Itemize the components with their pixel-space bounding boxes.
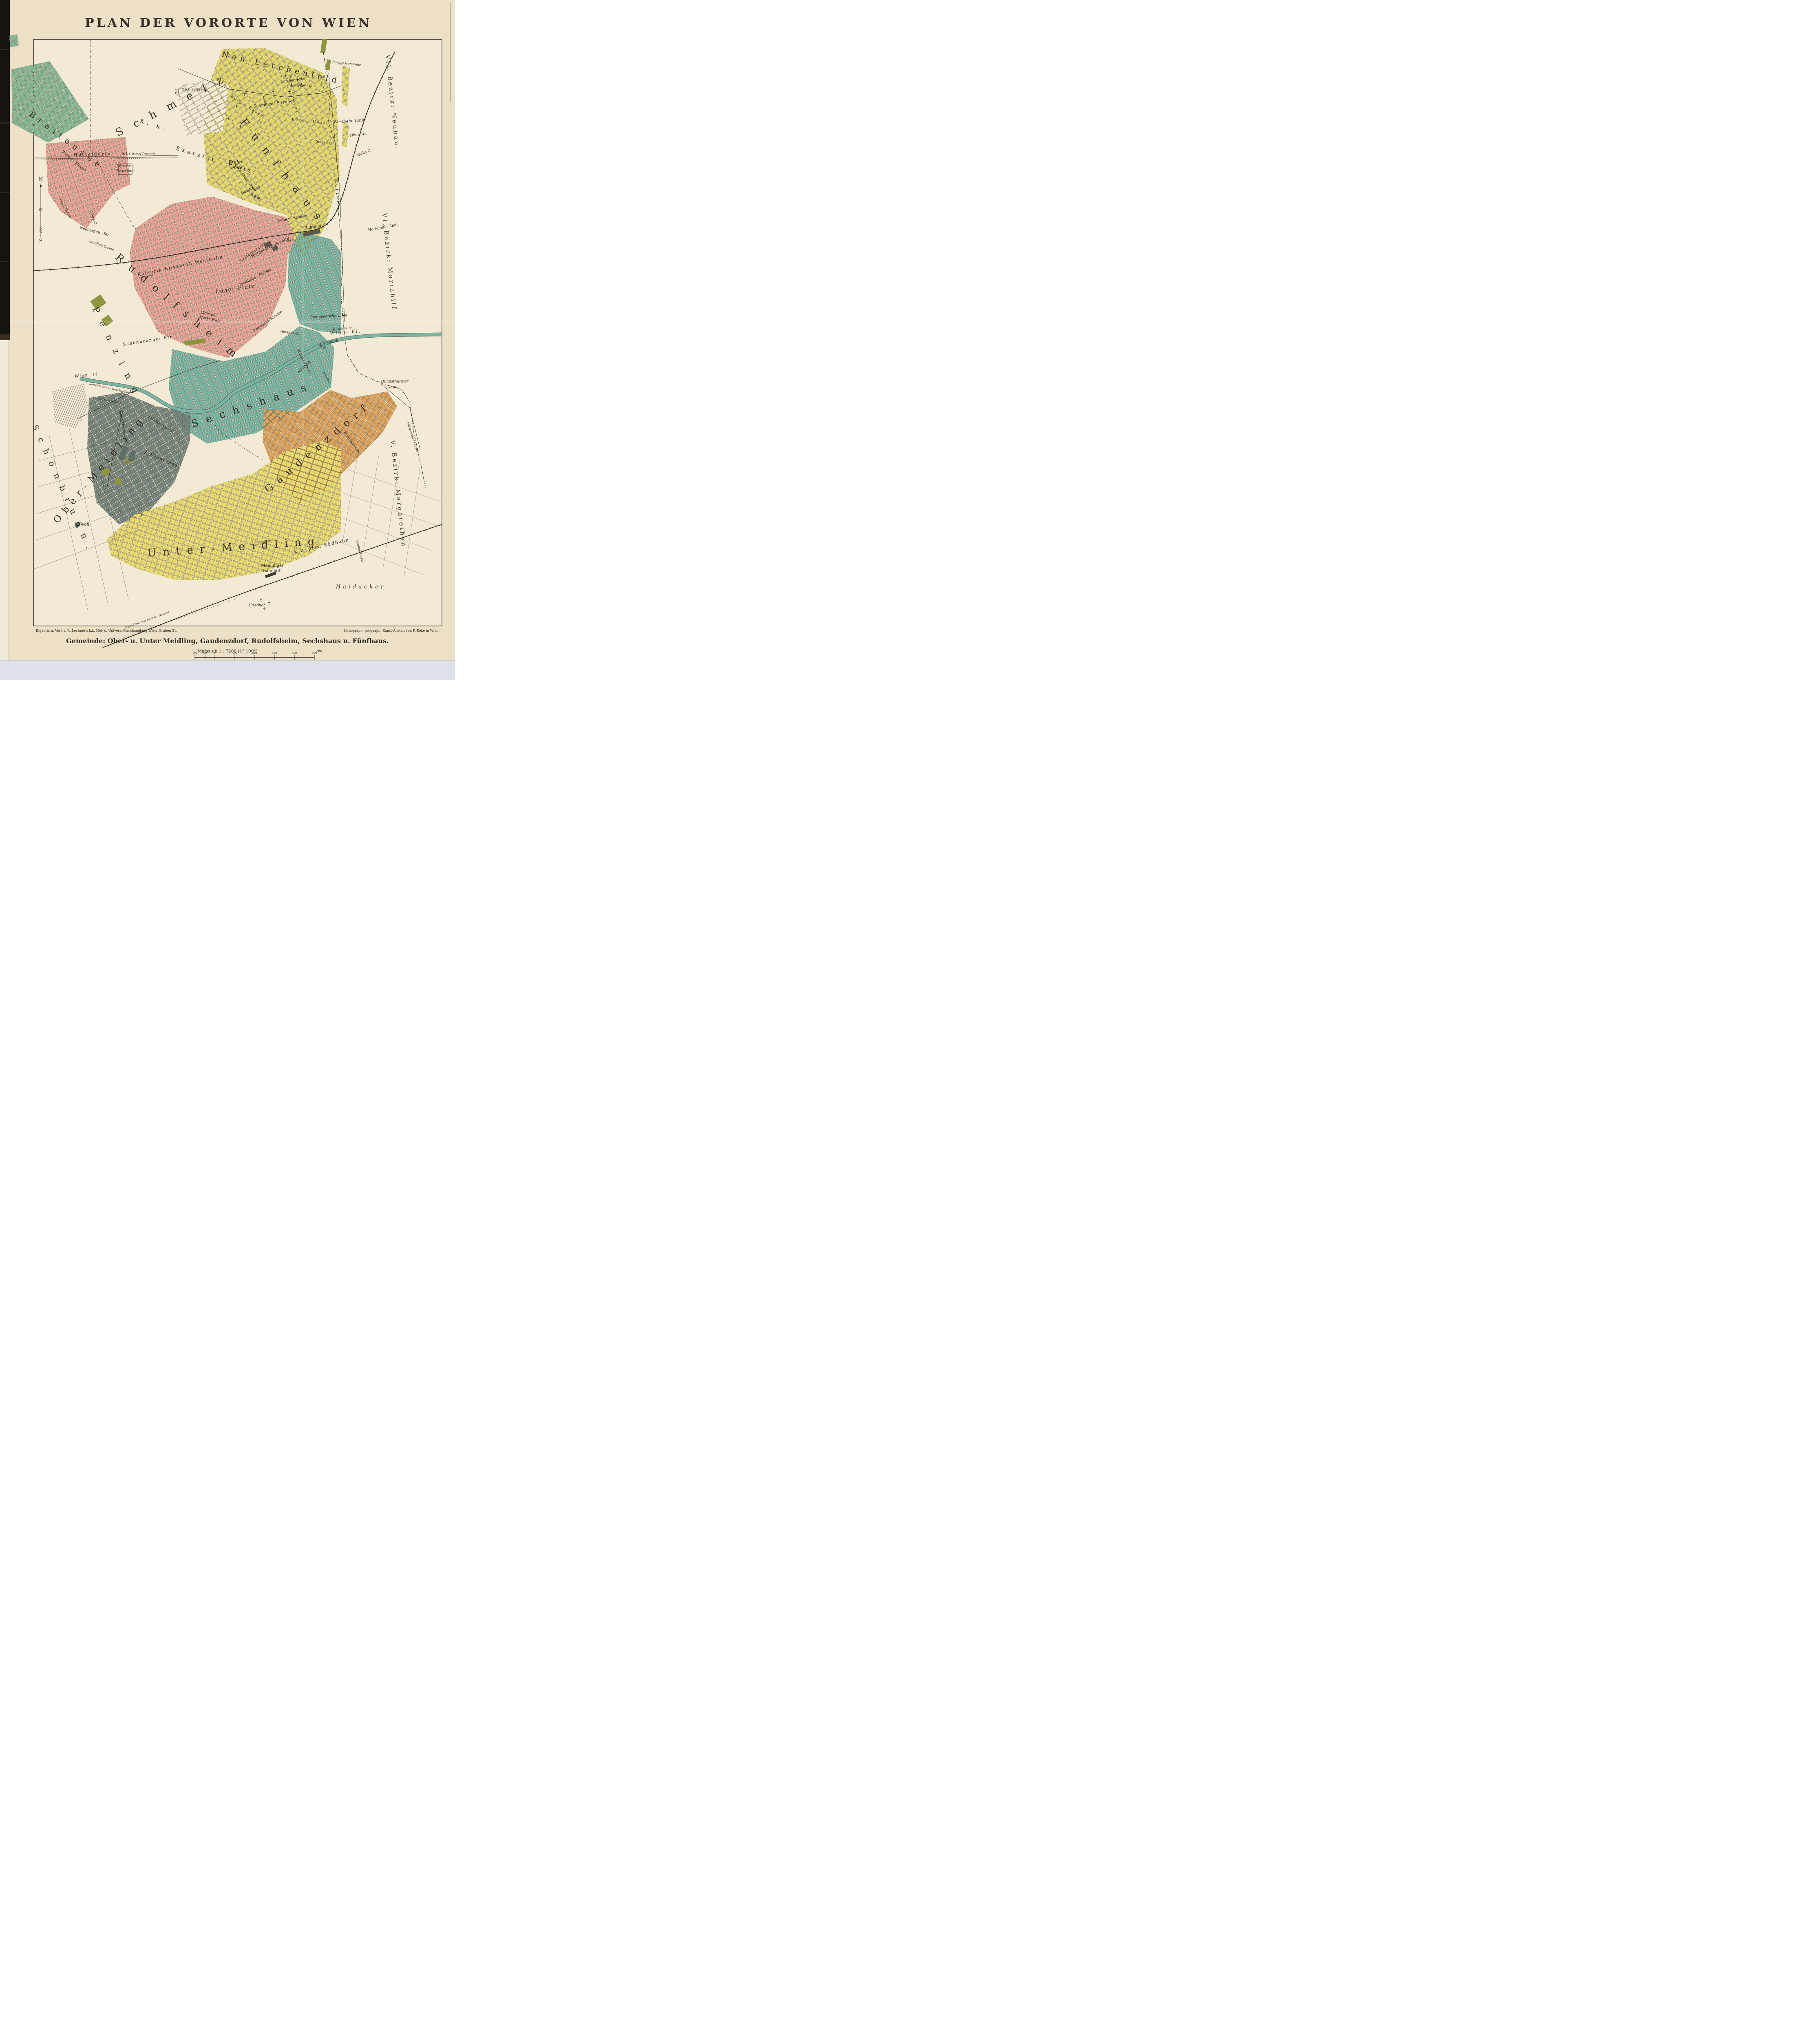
- map-canvas: PLAN DER VORORTE VON WIEN: [0, 0, 455, 680]
- scale-tick: 400: [292, 651, 297, 655]
- scanned-map-page: PLAN DER VORORTE VON WIEN: [0, 0, 455, 680]
- scale-tick: 100: [232, 651, 237, 655]
- gasometer-icon: [254, 195, 257, 198]
- scan-bed-strip: [0, 661, 455, 680]
- compass-north-label: N: [39, 177, 43, 182]
- label-wasser-1: Wasser-: [117, 164, 132, 168]
- imprint-left: Eigenth. u. Verl. v. R. Lechner's k.k. H…: [36, 629, 177, 632]
- label-tischler-kreuz: Tischler Kreuz: [181, 88, 207, 92]
- scale-tick: 100: [192, 651, 197, 655]
- fold-crease-vertical: [302, 40, 304, 626]
- zone-breitensee-west: [9, 34, 19, 47]
- label-friedhof-sued: Friedhof: [248, 604, 265, 608]
- scale-tick: 0: [214, 651, 216, 655]
- label-tivoli: Tivoli: [78, 522, 89, 527]
- label-hundsthurmer-1: Hundsthurmer: [380, 380, 409, 384]
- imprint-right: Lithograph.-geograph. Kunst-Anstalt von …: [344, 629, 440, 632]
- compass-south-label: S: [39, 238, 42, 243]
- fold-crease-horizontal: [10, 321, 455, 323]
- label-haidacker: Haidacker: [336, 584, 386, 590]
- scale-tick: 200: [252, 651, 257, 655]
- gemeinde-caption: Gemeinde: Ober- u. Unter Meidling, Gaude…: [66, 637, 389, 645]
- label-meidlinger-2: Bahnhof: [263, 569, 281, 573]
- label-hundsthurmer-2: Linie: [389, 385, 399, 389]
- scale-unit: Mtr.: [316, 649, 322, 652]
- scale-tick: 300: [272, 651, 277, 655]
- label-meidlinger-1: Meidlinger: [261, 564, 284, 568]
- gasometer-icon: [257, 197, 260, 200]
- label-tischler-height: 119: [175, 92, 179, 95]
- scale-tick: 50: [203, 651, 207, 655]
- gasometer-icon: [251, 193, 254, 196]
- gasometer-icon: [323, 347, 326, 349]
- label-freier-platz-1: Freier: [228, 159, 243, 165]
- map-title: PLAN DER VORORTE VON WIEN: [85, 16, 372, 30]
- label-wasser-2: Reservoir: [116, 169, 135, 173]
